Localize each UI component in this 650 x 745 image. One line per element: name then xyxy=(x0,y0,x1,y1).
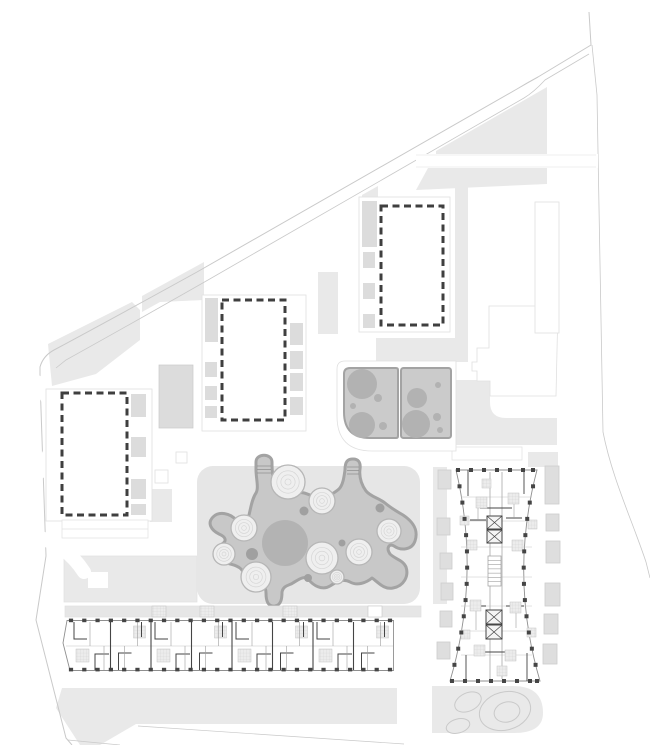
tower-hatch-room xyxy=(512,540,523,551)
balcony-block xyxy=(205,362,217,377)
tower-balcony xyxy=(543,644,557,664)
mound-outer xyxy=(309,488,335,514)
tower-balcony xyxy=(440,553,452,569)
playground xyxy=(197,455,420,606)
path-curve-left-lower xyxy=(34,536,84,572)
tower-balcony xyxy=(545,466,559,504)
slab-column xyxy=(268,619,272,623)
contour-mound xyxy=(330,570,344,584)
slab-column xyxy=(361,619,365,623)
slab-column xyxy=(295,668,299,672)
block-b-side-yard xyxy=(318,272,338,334)
slab-column xyxy=(149,668,153,672)
slab-column xyxy=(282,619,286,623)
slab-column xyxy=(228,619,232,623)
tower-column xyxy=(465,582,469,586)
slab-column xyxy=(335,619,339,623)
tower-balcony xyxy=(437,518,450,535)
tower-column xyxy=(456,647,460,651)
slab-column xyxy=(135,668,139,672)
tower-column xyxy=(523,533,527,537)
panel-circle xyxy=(379,422,387,430)
contour-mound xyxy=(346,539,372,565)
panel-circle xyxy=(433,413,441,421)
landscape-shape xyxy=(432,686,543,733)
slab-column xyxy=(242,668,246,672)
tower-balcony xyxy=(440,611,452,627)
playground-big-circle xyxy=(262,520,308,566)
ground-band-below-slab xyxy=(56,688,397,745)
panel-circle xyxy=(349,412,375,438)
slab-column xyxy=(135,619,139,623)
balcony-block xyxy=(131,479,146,499)
slab-column xyxy=(388,668,392,672)
ground-wedge-above-tower xyxy=(528,452,558,467)
tower-building xyxy=(437,466,560,683)
tower-column xyxy=(495,468,499,472)
tower-balcony xyxy=(438,470,451,489)
slab-column xyxy=(69,668,73,672)
balcony-block xyxy=(290,351,303,369)
slab-column xyxy=(215,668,219,672)
slab-column xyxy=(149,619,153,623)
tower-column xyxy=(515,679,519,683)
tower-column xyxy=(465,549,469,553)
tower-column xyxy=(460,501,464,505)
slab-hatch-room xyxy=(76,649,89,662)
walkway-white-box xyxy=(368,606,382,617)
slab-column xyxy=(242,619,246,623)
tower-balcony xyxy=(546,514,559,531)
tower-column xyxy=(458,484,462,488)
parcel-building-outline xyxy=(535,202,559,333)
tower-column xyxy=(527,630,531,634)
walkway-strip-band xyxy=(65,606,421,617)
tower-column xyxy=(463,517,467,521)
tower-column xyxy=(489,679,493,683)
slab-hatch-room xyxy=(319,649,332,662)
mound-outer xyxy=(377,519,401,543)
slab-hatch-room xyxy=(296,626,308,638)
contour-mound xyxy=(309,488,335,514)
slab-column xyxy=(321,619,325,623)
slab-column xyxy=(255,619,259,623)
tower-column xyxy=(530,647,534,651)
slab-hatch-room xyxy=(157,649,170,662)
panel-circle xyxy=(402,410,430,438)
path-square-1 xyxy=(176,452,187,463)
slab-column xyxy=(335,668,339,672)
slab-column xyxy=(282,668,286,672)
slab-column xyxy=(82,619,86,623)
tower-column xyxy=(531,484,535,488)
tower-column xyxy=(508,468,512,472)
tower-balcony xyxy=(441,583,453,600)
tower-balcony xyxy=(437,642,450,659)
balcony-block xyxy=(290,323,303,345)
site-plan-page xyxy=(0,0,650,745)
tower-column xyxy=(465,566,469,570)
block-c-balconies xyxy=(131,394,146,515)
tower-column xyxy=(535,679,539,683)
blob-dot xyxy=(339,540,346,547)
landscape-area xyxy=(432,686,543,736)
tower-column xyxy=(534,663,538,667)
slab-column xyxy=(375,668,379,672)
slab-column xyxy=(348,668,352,672)
contour-mound xyxy=(241,562,271,592)
tower-column xyxy=(521,468,525,472)
slab-column xyxy=(162,619,166,623)
site-plan-canvas xyxy=(0,0,650,745)
slab-column xyxy=(215,619,219,623)
ground-below-road-strip xyxy=(416,168,547,190)
tower-column xyxy=(462,614,466,618)
mound-outer xyxy=(213,543,235,565)
balcony-block xyxy=(131,437,146,457)
slab-hatch-room xyxy=(134,626,146,638)
slab-column xyxy=(308,619,312,623)
tower-balcony xyxy=(546,541,560,563)
slab-column xyxy=(122,668,126,672)
tower-column xyxy=(502,679,506,683)
tower-column xyxy=(452,663,456,667)
blob-dot xyxy=(246,548,258,560)
blob-dot xyxy=(376,504,385,513)
balcony-block xyxy=(205,298,218,342)
tower-core xyxy=(486,516,502,639)
tower-hatch-room xyxy=(528,520,537,529)
tower-column xyxy=(450,679,454,683)
panel-circle xyxy=(350,403,356,409)
tower-roof-strip xyxy=(452,447,522,460)
road-top-right xyxy=(416,154,598,168)
tower-column xyxy=(476,679,480,683)
ground-path-above-panels xyxy=(376,338,467,362)
tower-column xyxy=(525,614,529,618)
balcony-block xyxy=(363,314,375,328)
tower-hatch-room xyxy=(476,497,487,508)
tower-hatch-room xyxy=(482,479,491,488)
mound-outer xyxy=(306,542,338,574)
slab-column xyxy=(202,619,206,623)
slab-column xyxy=(189,668,193,672)
tower-hatch-room xyxy=(497,666,507,676)
mound-outer xyxy=(271,465,305,499)
slab-column xyxy=(109,668,113,672)
panel-circle xyxy=(407,388,427,408)
tower-column xyxy=(463,679,467,683)
ground-patch-left-plaza xyxy=(150,489,172,522)
slab-column xyxy=(95,619,99,623)
mound-outer xyxy=(241,562,271,592)
tower-hatch-room xyxy=(467,540,477,550)
walkway-hatch-box xyxy=(152,606,166,617)
contour-mound xyxy=(213,543,235,565)
contour-mound xyxy=(306,542,338,574)
slab-column xyxy=(69,619,73,623)
panel-circle xyxy=(374,394,382,402)
balcony-block xyxy=(290,373,303,391)
panel-circle xyxy=(437,427,443,433)
mound-outer xyxy=(231,515,257,541)
slab-column xyxy=(388,619,392,623)
tower-column xyxy=(464,533,468,537)
balcony-block xyxy=(363,283,375,299)
tower-column xyxy=(528,679,532,683)
block-a xyxy=(359,197,450,332)
blob-dot xyxy=(304,574,312,582)
slab-building xyxy=(63,619,394,672)
slab-column xyxy=(348,619,352,623)
balcony-block xyxy=(290,397,303,415)
tower-balcony xyxy=(544,614,558,634)
tower-column xyxy=(525,517,529,521)
tower-column xyxy=(482,468,486,472)
slab-column xyxy=(162,668,166,672)
walkway-strip xyxy=(65,606,421,617)
tower-column xyxy=(459,630,463,634)
contour-mound xyxy=(377,519,401,543)
tower-hatch-room xyxy=(510,602,521,613)
tower-column xyxy=(469,468,473,472)
tower-column xyxy=(528,501,532,505)
slab-column xyxy=(175,619,179,623)
balcony-block xyxy=(362,201,377,247)
tower-hatch-room xyxy=(508,493,519,504)
block-c xyxy=(46,389,152,538)
tower-column xyxy=(464,598,468,602)
big-play-circle xyxy=(262,520,308,566)
slab-column xyxy=(175,668,179,672)
tower-balcony xyxy=(545,583,560,606)
slab-hatch-room xyxy=(238,649,251,662)
slab-column xyxy=(122,619,126,623)
play-panels xyxy=(337,361,456,451)
slab-column xyxy=(109,619,113,623)
balcony-block xyxy=(363,252,375,268)
slab-column xyxy=(268,668,272,672)
slab-column xyxy=(295,619,299,623)
contour-mound xyxy=(231,515,257,541)
panel-circle xyxy=(347,369,377,399)
slab-hatch-room xyxy=(377,626,389,638)
slab-column xyxy=(202,668,206,672)
mound-outer xyxy=(346,539,372,565)
path-square-2 xyxy=(155,470,168,483)
panel-circle xyxy=(435,382,441,388)
slab-column xyxy=(321,668,325,672)
tower-hatch-room xyxy=(505,650,516,661)
balcony-block xyxy=(131,504,146,515)
ground-top-right-wedge xyxy=(436,87,547,154)
tower-column xyxy=(522,566,526,570)
slab-column xyxy=(361,668,365,672)
walkway-hatch-box xyxy=(283,606,297,617)
tower-column xyxy=(522,549,526,553)
blob-dot xyxy=(300,507,309,516)
tower-column xyxy=(456,468,460,472)
path-hole-band xyxy=(88,572,108,588)
slab-column xyxy=(95,668,99,672)
ground-wedge-left-block-b xyxy=(142,262,204,312)
balcony-block xyxy=(205,386,217,400)
slab-column xyxy=(228,668,232,672)
slab-hatch-room xyxy=(215,626,227,638)
tower-column xyxy=(523,598,527,602)
site-boundary-right xyxy=(592,45,650,578)
slab-column xyxy=(255,668,259,672)
ground-strip-right-block-a xyxy=(455,178,468,362)
slab-column xyxy=(189,619,193,623)
tower-column xyxy=(522,582,526,586)
tower-hatch-room xyxy=(474,645,485,656)
walkway-hatch-box xyxy=(200,606,214,617)
block-b-forecourt xyxy=(159,365,193,428)
balcony-block xyxy=(205,406,217,418)
tower-hatch-room xyxy=(470,600,481,611)
tower-column xyxy=(531,468,535,472)
slab-column xyxy=(308,668,312,672)
balcony-block xyxy=(131,394,146,417)
contour-mound xyxy=(271,465,305,499)
slab-outline xyxy=(63,621,394,671)
slab-column xyxy=(82,668,86,672)
slab-column xyxy=(375,619,379,623)
